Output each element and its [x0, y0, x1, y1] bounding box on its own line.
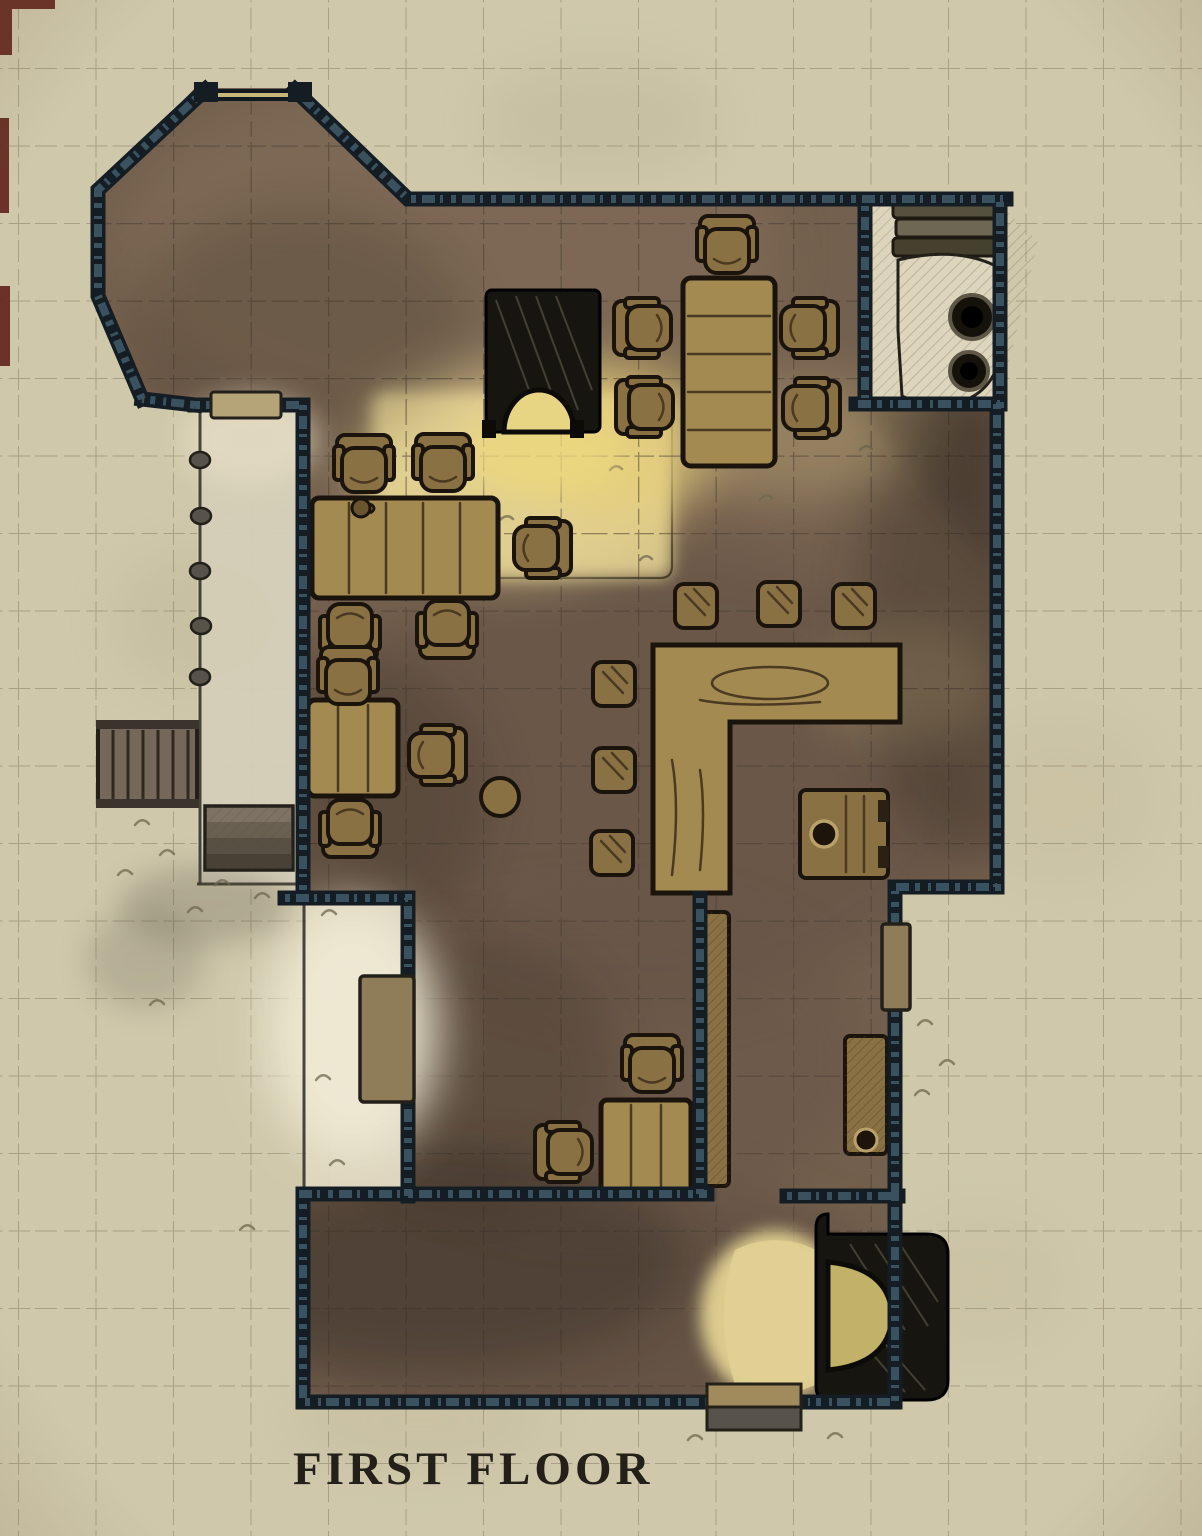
- map-title: FIRST FLOOR: [293, 1443, 653, 1495]
- floorplan-page: FIRST FLOOR: [0, 0, 1202, 1536]
- vignette: [0, 0, 1202, 1536]
- floorplan-map: FIRST FLOOR: [0, 0, 1202, 1536]
